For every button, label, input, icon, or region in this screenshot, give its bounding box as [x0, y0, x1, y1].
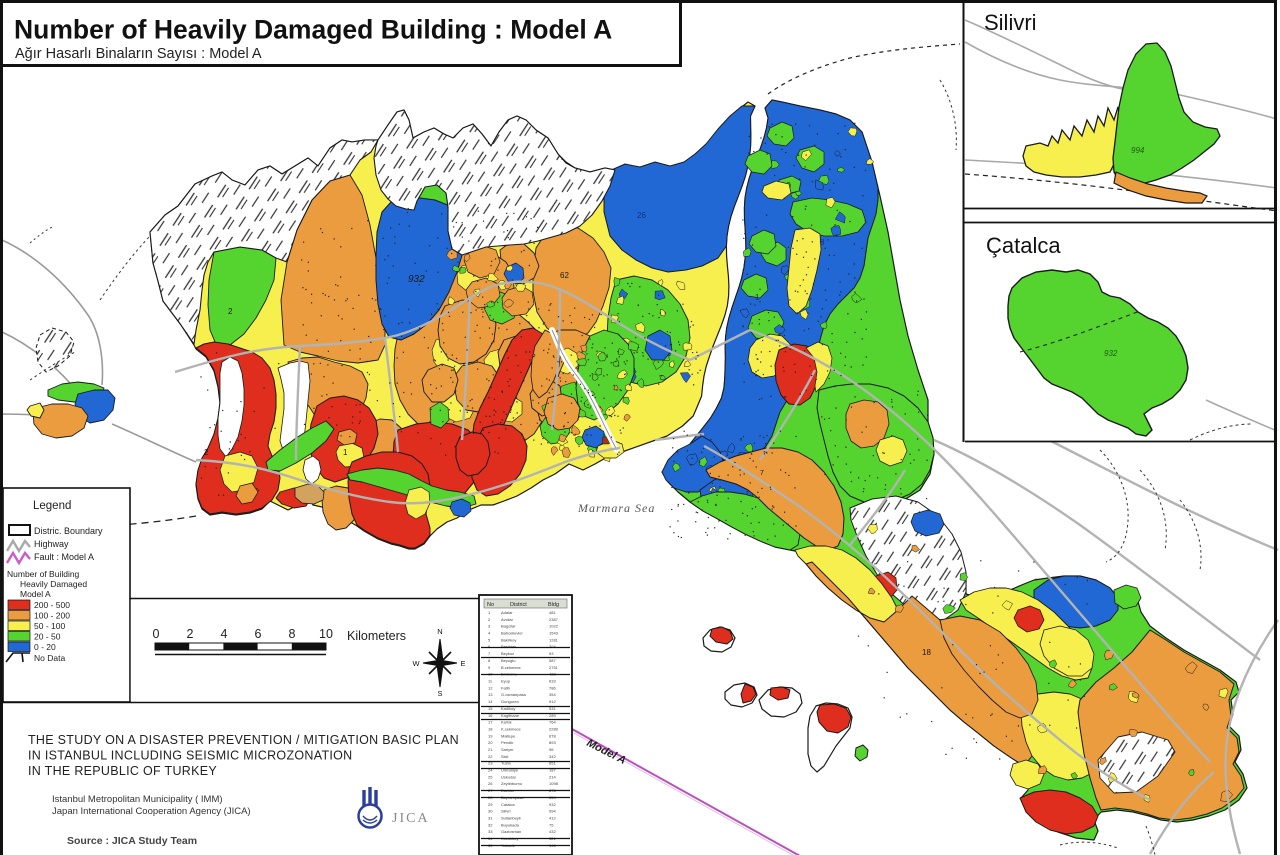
svg-text:994: 994 [1131, 146, 1145, 155]
svg-text:26: 26 [488, 781, 493, 786]
svg-text:354: 354 [549, 692, 556, 697]
svg-text:214: 214 [549, 774, 556, 779]
svg-text:1: 1 [755, 293, 760, 302]
svg-text:Source : JICA Study Team: Source : JICA Study Team [67, 835, 197, 847]
svg-text:17: 17 [488, 720, 493, 725]
svg-text:678: 678 [549, 733, 556, 738]
svg-text:Kilometers: Kilometers [347, 629, 406, 643]
svg-text:2289: 2289 [549, 727, 559, 732]
svg-text:IN THE REPUBLIC OF TURKEY: IN THE REPUBLIC OF TURKEY [28, 764, 217, 778]
svg-text:Bakirkoy: Bakirkoy [501, 637, 516, 642]
svg-text:342: 342 [549, 754, 556, 759]
svg-text:G.osmanpasa: G.osmanpasa [501, 692, 527, 697]
svg-text:Zeytinburnu: Zeytinburnu [501, 781, 522, 786]
svg-text:Silivri: Silivri [984, 10, 1037, 35]
svg-text:JICA: JICA [392, 811, 430, 826]
svg-text:8: 8 [289, 627, 296, 641]
svg-text:S: S [437, 689, 442, 698]
svg-text:District: District [510, 602, 527, 608]
svg-text:Çatalca: Çatalca [986, 233, 1061, 258]
svg-text:8: 8 [820, 238, 825, 247]
svg-text:Gaziosman: Gaziosman [501, 829, 521, 834]
svg-text:K.cekmece: K.cekmece [501, 727, 522, 732]
svg-text:20 - 50: 20 - 50 [34, 632, 61, 642]
svg-text:1098: 1098 [549, 781, 559, 786]
svg-text:2: 2 [187, 627, 194, 641]
svg-text:26: 26 [637, 211, 646, 220]
svg-text:21: 21 [488, 747, 493, 752]
svg-text:THE STUDY ON A DISASTER PREVEN: THE STUDY ON A DISASTER PREVENTION / MIT… [28, 733, 459, 747]
svg-text:Heavily Damaged: Heavily Damaged [20, 579, 87, 589]
svg-text:Bldg: Bldg [548, 602, 559, 608]
svg-text:32: 32 [488, 822, 493, 827]
svg-text:Sariyer: Sariyer [501, 747, 514, 752]
svg-text:B.cekmece: B.cekmece [501, 665, 522, 670]
svg-text:Catalca: Catalca [501, 802, 515, 807]
svg-text:19: 19 [488, 733, 493, 738]
svg-text:Adalar: Adalar [501, 610, 513, 615]
svg-text:893: 893 [549, 740, 556, 745]
svg-text:Ağır Hasarlı Binaların Sayısı: Ağır Hasarlı Binaların Sayısı : Model A [15, 46, 262, 62]
svg-text:994: 994 [549, 809, 556, 814]
svg-text:No: No [487, 602, 494, 608]
svg-text:22: 22 [488, 754, 493, 759]
svg-text:1022: 1022 [549, 624, 559, 629]
svg-text:Gungoren: Gungoren [501, 699, 519, 704]
svg-text:4: 4 [221, 627, 228, 641]
svg-text:0: 0 [153, 627, 160, 641]
svg-text:200 - 500: 200 - 500 [34, 600, 70, 610]
svg-text:31: 31 [488, 816, 493, 821]
svg-text:Uskudar: Uskudar [501, 774, 517, 779]
svg-text:Eyup: Eyup [501, 679, 511, 684]
svg-text:18: 18 [488, 727, 493, 732]
svg-text:1: 1 [343, 448, 348, 457]
svg-text:Model A: Model A [20, 589, 51, 599]
svg-text:Fatih: Fatih [501, 685, 510, 690]
svg-text:29: 29 [488, 802, 493, 807]
svg-text:30: 30 [488, 809, 493, 814]
svg-text:18: 18 [922, 648, 931, 657]
svg-text:96: 96 [549, 747, 554, 752]
svg-text:764: 764 [549, 720, 556, 725]
svg-text:Legend: Legend [33, 500, 71, 512]
svg-text:No Data: No Data [34, 653, 65, 663]
svg-text:932: 932 [408, 274, 425, 285]
svg-text:Sisli: Sisli [501, 754, 508, 759]
svg-text:Highway: Highway [34, 539, 69, 549]
svg-text:50 - 100: 50 - 100 [34, 621, 65, 631]
svg-text:Istanbul Metropolitan Municipa: Istanbul Metropolitan Municipality ( IMM… [52, 794, 223, 805]
svg-text:Bahcelievler: Bahcelievler [501, 631, 523, 636]
svg-text:587: 587 [549, 658, 556, 663]
svg-text:2751: 2751 [549, 665, 559, 670]
svg-text:786: 786 [549, 685, 556, 690]
svg-text:33: 33 [488, 829, 493, 834]
svg-text:6: 6 [255, 627, 262, 641]
svg-text:481: 481 [549, 610, 556, 615]
svg-text:Buyukada: Buyukada [501, 822, 520, 827]
svg-text:7: 7 [760, 470, 764, 477]
svg-text:Avcilar: Avcilar [501, 617, 514, 622]
svg-text:N: N [437, 627, 442, 636]
svg-text:432: 432 [549, 829, 556, 834]
svg-text:Sultanbeyli: Sultanbeyli [501, 816, 521, 821]
svg-text:Japan International Cooperatio: Japan International Cooperation Agency (… [52, 806, 251, 817]
svg-text:Distric. Boundary: Distric. Boundary [34, 526, 103, 536]
svg-text:2: 2 [228, 307, 233, 316]
svg-text:100 - 200: 100 - 200 [34, 611, 70, 621]
svg-text:75: 75 [549, 822, 554, 827]
svg-text:93: 93 [549, 651, 554, 656]
svg-text:E: E [460, 659, 465, 668]
svg-text:1543: 1543 [549, 631, 559, 636]
svg-text:1281: 1281 [549, 637, 559, 642]
svg-text:0 - 20: 0 - 20 [34, 642, 56, 652]
svg-text:25: 25 [488, 774, 493, 779]
svg-text:IN ISTANBUL INCLUDING SEISMIC: IN ISTANBUL INCLUDING SEISMIC MICROZONAT… [28, 749, 353, 763]
svg-text:13: 13 [488, 692, 493, 697]
svg-text:2: 2 [204, 448, 209, 457]
svg-text:932: 932 [549, 802, 556, 807]
svg-text:Maltepe: Maltepe [501, 733, 516, 738]
svg-text:Silivri: Silivri [501, 809, 511, 814]
svg-text:Fault : Model A: Fault : Model A [34, 552, 94, 562]
svg-text:Marmara Sea: Marmara Sea [577, 501, 655, 515]
svg-text:Number of Heavily Damaged Buil: Number of Heavily Damaged Building : Mod… [14, 15, 612, 45]
svg-text:Beyoglu: Beyoglu [501, 658, 515, 663]
svg-text:Beykoz: Beykoz [501, 651, 514, 656]
svg-text:Bagcilar: Bagcilar [501, 624, 516, 629]
svg-text:Number of Building: Number of Building [7, 569, 80, 579]
svg-text:10: 10 [319, 627, 333, 641]
svg-text:412: 412 [549, 816, 556, 821]
svg-text:Pendik: Pendik [501, 740, 513, 745]
svg-text:932: 932 [1104, 349, 1118, 358]
svg-text:204: 204 [549, 644, 556, 649]
svg-text:12: 12 [488, 685, 493, 690]
svg-text:14: 14 [488, 699, 493, 704]
svg-text:633: 633 [549, 679, 556, 684]
svg-text:Besiktas: Besiktas [501, 644, 516, 649]
svg-text:912: 912 [549, 699, 556, 704]
svg-text:W: W [412, 659, 420, 668]
svg-text:62: 62 [560, 271, 569, 280]
svg-text:Kartal: Kartal [501, 720, 512, 725]
svg-text:2387: 2387 [549, 617, 559, 622]
svg-text:20: 20 [488, 740, 493, 745]
